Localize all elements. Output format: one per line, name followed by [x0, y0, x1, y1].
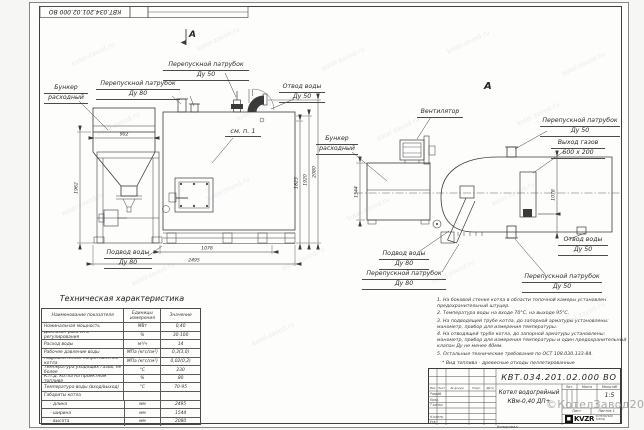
note-item: 4. На отводящей трубе котла, до запорной…: [437, 332, 629, 351]
stamp-col: Подп.: [469, 386, 484, 390]
mass-header: Масса: [577, 385, 597, 389]
cell: °С: [123, 383, 160, 391]
note-item: 2. Температура воды на входе 70°С, на вы…: [437, 311, 629, 317]
stamp-row: Пров.: [430, 398, 446, 402]
cell: [160, 392, 200, 400]
logo-text: KVZR: [574, 415, 594, 423]
dim-side-height: 1078: [552, 189, 557, 201]
note-item: 3. На подводящей трубе котла, до запорно…: [437, 319, 629, 331]
label-line: Ду 80: [379, 260, 429, 270]
cell: МПа (кгс/см²): [123, 349, 160, 357]
cell: Рабочее давление воды: [42, 349, 123, 357]
kvzr-logo: ■ KVZR КОТЕЛЬНЫЙ ЗАВОД: [565, 415, 613, 423]
stamp-row: Утв.: [430, 420, 446, 424]
label-line: Перепускной патрубок: [540, 117, 620, 127]
table-row: Габариты котла: [42, 391, 200, 400]
cell: м³/ч: [123, 340, 160, 348]
label-line: Выход газов: [551, 139, 605, 149]
stamp-col: Лист: [437, 386, 446, 390]
kopiroval-label: Копировал: [497, 425, 518, 429]
dim-h2: 1920: [304, 174, 309, 186]
column-header: Наименование показателя: [42, 309, 123, 322]
label-line: Ду 50: [279, 93, 325, 103]
callout-bypass50-front: Перепускной патрубок Ду 50: [163, 61, 249, 81]
logo-caption: КОТЕЛЬНЫЙ ЗАВОД: [596, 416, 613, 422]
callout-water-outlet-front: Отвод воды Ду 50: [279, 83, 325, 103]
cell: 70-95: [160, 383, 200, 391]
column-header: Значение: [160, 309, 200, 322]
lit-header: Лит.: [562, 385, 577, 389]
logo-mark-icon: ■: [565, 415, 573, 423]
label-line: Ду 50: [540, 127, 620, 137]
cell: МВт: [123, 323, 160, 331]
table-row: Температура уходящих газов, не более°С23…: [42, 365, 200, 374]
table-row: Температура воды (вход/выход)°С70-95: [42, 382, 200, 391]
cell: - длина: [42, 401, 124, 409]
label-line: Ду 80: [96, 90, 180, 100]
cell: %: [123, 375, 160, 383]
label-line: Подвод воды: [104, 249, 152, 259]
cell: - высота: [42, 418, 124, 426]
cell: 230: [160, 366, 200, 374]
callout-water-inlet-side: Подвод воды Ду 80: [379, 250, 429, 270]
label-line: Бункер: [44, 84, 88, 94]
cell: МПа (кгс/см²): [123, 358, 160, 366]
cell: Диапазон рабочего регулирования: [42, 332, 123, 340]
callout-fan: Вентилятор: [417, 108, 463, 118]
table-row: - длинамм2495: [42, 400, 200, 409]
stamp-col: Изм.: [429, 386, 437, 390]
section-marker-side: А: [484, 81, 492, 92]
cell: 2080: [160, 418, 200, 426]
table-row: Номинальная мощностьМВт0,40: [42, 322, 200, 331]
dim-length: 2495: [188, 259, 200, 264]
label-line: Перепускной патрубок: [96, 80, 180, 90]
cell: 0,40: [160, 323, 200, 331]
cell: 14: [160, 340, 200, 348]
label-line: Ду 80: [104, 259, 152, 269]
cell: Гидравлическое сопротивление котла: [42, 358, 123, 366]
table-row: Диапазон рабочего регулирования%30-100: [42, 331, 200, 340]
scale-header: Масштаб: [597, 385, 622, 389]
label-line: Перепускной патрубок: [163, 61, 249, 71]
doc-number: КВТ.034.201.02.000 ВО: [496, 369, 622, 384]
cell: %: [123, 332, 160, 340]
table-row: Рабочее давление водыМПа (кгс/см²)0,3(3,…: [42, 348, 200, 357]
cell: Габариты котла: [42, 392, 123, 400]
label-line: Подвод воды: [379, 250, 429, 260]
label-line: расходный: [44, 94, 88, 104]
cell: 30-100: [160, 332, 200, 340]
label-line: см. п. 1: [225, 127, 261, 137]
stamp-col: Дата: [484, 386, 496, 390]
callout-water-outlet-side: Отвод воды Ду 50: [558, 236, 608, 256]
label-line: Отвод воды: [279, 83, 325, 93]
dim-height-left: 1962: [75, 182, 80, 194]
title-block: КВТ.034.201.02.000 ВО Котел водогрейный …: [428, 368, 621, 424]
cell: Температура уходящих газов, не более: [42, 366, 123, 374]
cell: мм: [124, 418, 161, 426]
stamp-row: Н.контр.: [430, 415, 446, 419]
dim-h3: 2080: [313, 166, 318, 178]
section-marker-front: А: [189, 30, 196, 40]
stamp-row: Т.контр.: [430, 403, 446, 407]
table-header-row: Наименование показателя Единицы измерени…: [42, 309, 200, 322]
cell: К.П.Д. котла на проектном топливе: [42, 375, 123, 383]
label-line: Отвод воды: [558, 236, 608, 246]
rotated-doc-number: КВТ.034.201.02.000 ВО: [40, 6, 130, 17]
callout-hopper-front: Бункер расходный: [44, 84, 88, 104]
drawing-canvas: КВТ.034.201.02.000 ВО А А Бункер расходн…: [0, 0, 644, 430]
label-line: Ду 50: [522, 283, 602, 293]
table-row: - ширинамм1544: [42, 408, 200, 417]
label-line: Ду 50: [558, 246, 608, 256]
callout-water-inlet-front: Подвод воды Ду 80: [104, 249, 152, 269]
cell: мм: [124, 401, 161, 409]
cell: - ширина: [42, 409, 124, 417]
callout-hopper-side: Бункер расходный: [316, 135, 358, 155]
dim-side-width: 1544: [355, 186, 360, 198]
dim-base: 1078: [201, 247, 213, 252]
label-line: Перепускной патрубок: [522, 273, 602, 283]
cell: 0,3(3,0): [160, 349, 200, 357]
column-header: Единицы измерения: [123, 309, 160, 322]
stamp-row: Разраб.: [430, 392, 446, 396]
watermark-corner: ©КотелЗавод2021: [546, 398, 644, 411]
tech-table: Наименование показателя Единицы измерени…: [41, 308, 201, 425]
label-line: расходный: [316, 145, 358, 155]
cell: °С: [123, 366, 160, 374]
cell: мм: [124, 409, 161, 417]
table-row: К.П.Д. котла на проектном топливе%80: [42, 374, 200, 383]
fuel-note: * Вид топлива - древесные отходы пеллети…: [437, 361, 629, 367]
callout-bypass50-top-side: Перепускной патрубок Ду 50: [540, 117, 620, 137]
cell: 2495: [160, 401, 200, 409]
cell: 80: [160, 375, 200, 383]
logo-caption-line2: ЗАВОД: [596, 418, 605, 421]
part-name-line1: Котел водогрейный: [496, 389, 562, 398]
label-line: Бункер: [316, 135, 358, 145]
dim-h1: 1825: [295, 177, 300, 189]
table-row: - высотамм2080: [42, 417, 200, 426]
cell: 0,02(0,2): [160, 358, 200, 366]
tech-table-title: Техническая характеристика: [46, 294, 198, 303]
cell: [123, 392, 160, 400]
table-row: Расход водым³/ч14: [42, 339, 200, 348]
note-item: 5. Остальные технические требования по О…: [437, 352, 629, 358]
cell: Расход воды: [42, 340, 123, 348]
dim-hopper-width: 902: [120, 133, 129, 138]
table-row: Гидравлическое сопротивление котлаМПа (к…: [42, 357, 200, 366]
callout-bypass80-front: Перепускной патрубок Ду 80: [96, 80, 180, 100]
label-line: Ду 50: [163, 71, 249, 81]
label-line: 600 х 200: [551, 149, 605, 159]
stamp-col: № докум.: [446, 386, 469, 390]
cell: Температура воды (вход/выход): [42, 383, 123, 391]
callout-bypass50-bottom-side: Перепускной патрубок Ду 50: [522, 273, 602, 293]
callout-gas-outlet: Выход газов 600 х 200: [551, 139, 605, 159]
cell: 1544: [160, 409, 200, 417]
label-line: Вентилятор: [417, 108, 463, 118]
see-note-ref: см. п. 1: [225, 127, 261, 137]
cell: Номинальная мощность: [42, 323, 123, 331]
